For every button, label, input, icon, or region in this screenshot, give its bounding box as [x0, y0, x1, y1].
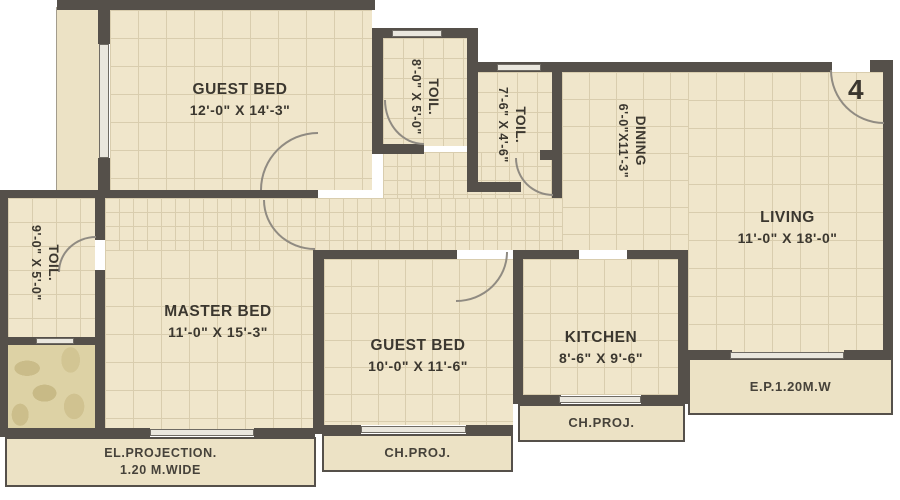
room-name: TOIL.: [424, 79, 442, 116]
wall: [98, 0, 110, 44]
room-dims: 6'-0"X11'-3": [615, 104, 631, 179]
floor-plan: GUEST BED 12'-0" X 14'-3" TOIL. 8'-0" X …: [0, 0, 900, 500]
window: [559, 396, 641, 403]
room-name: TOIL.: [511, 107, 529, 144]
room-name: LIVING: [760, 208, 815, 229]
toilet-left-label: TOIL. 9'-0" X 5'-0": [0, 208, 100, 318]
room-dims: 12'-0" X 14'-3": [190, 101, 291, 120]
room-name: DINING: [631, 116, 649, 166]
wall: [0, 190, 318, 198]
wall: [513, 395, 561, 404]
unit-number: 4: [848, 74, 864, 106]
projection-text: EL.PROJECTION.: [104, 445, 217, 462]
master-bed-label: MASTER BED 11'-0" X 15'-3": [108, 292, 328, 352]
projection-text: E.P.1.20M.W: [750, 378, 832, 396]
guest-bed-2-label: GUEST BED 10'-0" X 11'-6": [308, 326, 528, 386]
wall: [254, 428, 315, 437]
ch-proj-kitchen-label: CH.PROJ.: [518, 404, 685, 442]
ep-balcony-label: E.P.1.20M.W: [688, 358, 893, 415]
projection-text: CH.PROJ.: [568, 414, 634, 432]
hall-floor: [105, 198, 562, 250]
room-dims: 9'-0" X 5'-0": [28, 225, 44, 301]
wall: [313, 425, 361, 434]
room-dims: 11'-0" X 15'-3": [168, 323, 268, 342]
wall: [0, 428, 150, 437]
el-projection-label: EL.PROJECTION. 1.20 M.WIDE: [5, 437, 316, 487]
balcony-strip-edge: [56, 7, 101, 191]
wall: [552, 62, 832, 72]
room-dims: 8'-0" X 5'-0": [408, 59, 424, 135]
wall: [466, 425, 513, 434]
room-name: GUEST BED: [371, 336, 466, 357]
window: [361, 426, 466, 433]
projection-text: CH.PROJ.: [384, 444, 450, 462]
wall: [467, 182, 521, 192]
window: [99, 44, 109, 158]
projection-text: 1.20 M.WIDE: [120, 462, 201, 479]
kitchen-label: KITCHEN 8'-6" X 9'-6": [506, 318, 696, 378]
flower-bed: [8, 345, 95, 428]
living-label: LIVING 11'-0" X 18'-0": [690, 198, 885, 258]
wall: [313, 250, 457, 259]
room-dims: 8'-6" X 9'-6": [559, 349, 643, 368]
toilet-mid-label: TOIL. 7'-6" X 4'-6": [457, 70, 567, 180]
room-name: GUEST BED: [193, 80, 288, 101]
room-name: KITCHEN: [565, 328, 637, 349]
room-dims: 7'-6" X 4'-6": [495, 87, 511, 163]
room-dims: 11'-0" X 18'-0": [738, 229, 838, 248]
room-dims: 10'-0" X 11'-6": [368, 357, 468, 376]
wall: [641, 395, 688, 404]
window: [36, 338, 74, 344]
ch-proj-guest-label: CH.PROJ.: [322, 434, 513, 472]
window: [150, 429, 254, 436]
room-name: MASTER BED: [164, 302, 271, 323]
window: [392, 30, 442, 37]
room-name: TOIL.: [44, 245, 62, 282]
guest-bed-1-label: GUEST BED 12'-0" X 14'-3": [130, 70, 350, 130]
dining-label: DINING 6'-0"X11'-3": [567, 76, 697, 206]
